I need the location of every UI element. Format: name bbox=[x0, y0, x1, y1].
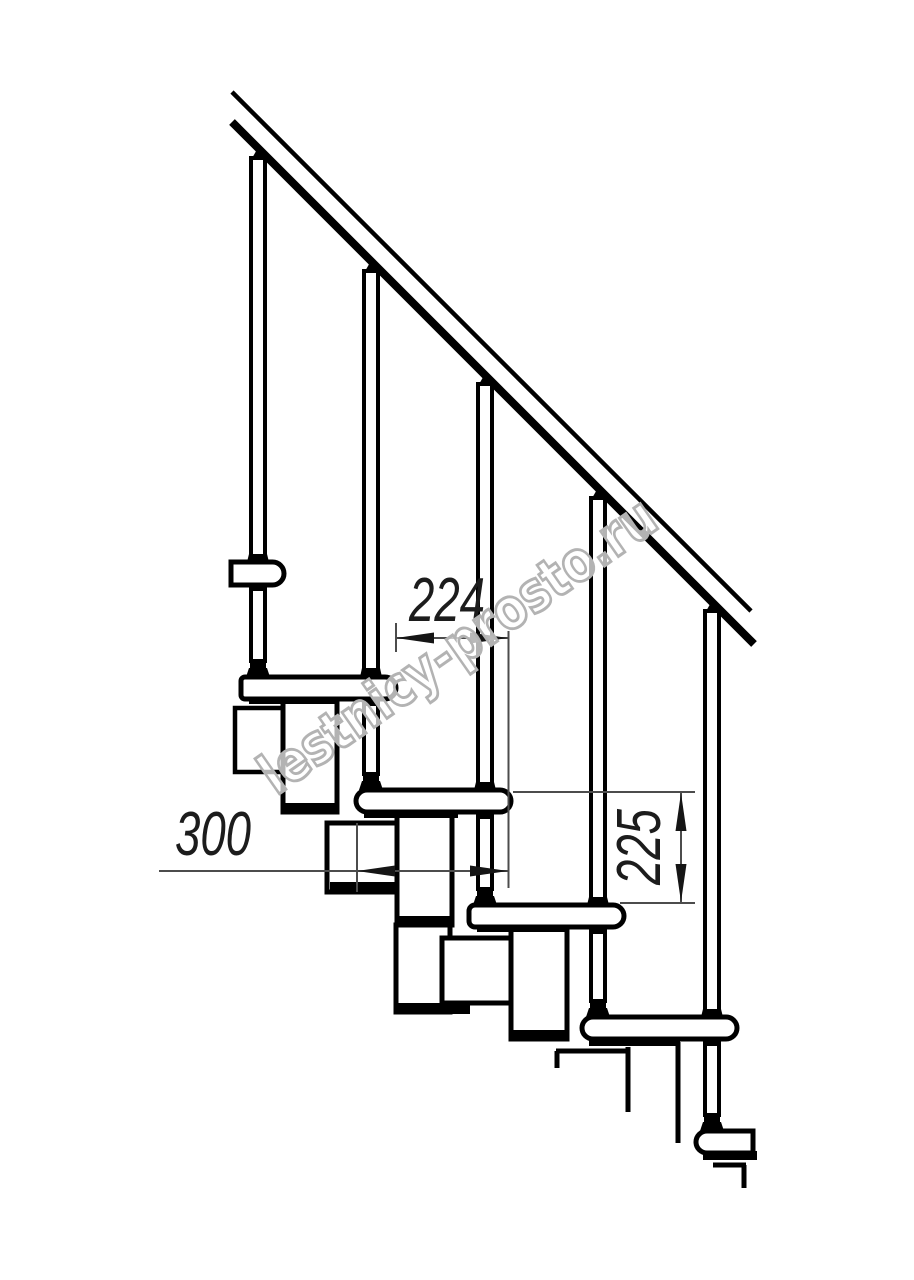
tread-2-shadow bbox=[364, 811, 458, 818]
dim-300-label: 300 bbox=[175, 800, 251, 869]
module-box-2a bbox=[397, 813, 452, 925]
tread-3-shadow bbox=[477, 925, 567, 932]
staircase-drawing-canvas: 224 300 225 lestnicy-prosto.ru bbox=[0, 0, 914, 1280]
tread-4 bbox=[582, 1017, 737, 1039]
tread-0-landing bbox=[231, 562, 284, 585]
tread-5 bbox=[696, 1131, 753, 1153]
technical-drawing: 224 300 225 lestnicy-prosto.ru bbox=[0, 0, 914, 1280]
module-box-3a bbox=[511, 926, 567, 1039]
tread-5-shadow bbox=[703, 1151, 757, 1160]
tread-3 bbox=[469, 905, 624, 927]
tread-4-shadow bbox=[589, 1039, 680, 1046]
tread-2 bbox=[356, 790, 511, 812]
dim-225-label: 225 bbox=[605, 809, 674, 886]
module-box-2c bbox=[442, 938, 518, 1003]
